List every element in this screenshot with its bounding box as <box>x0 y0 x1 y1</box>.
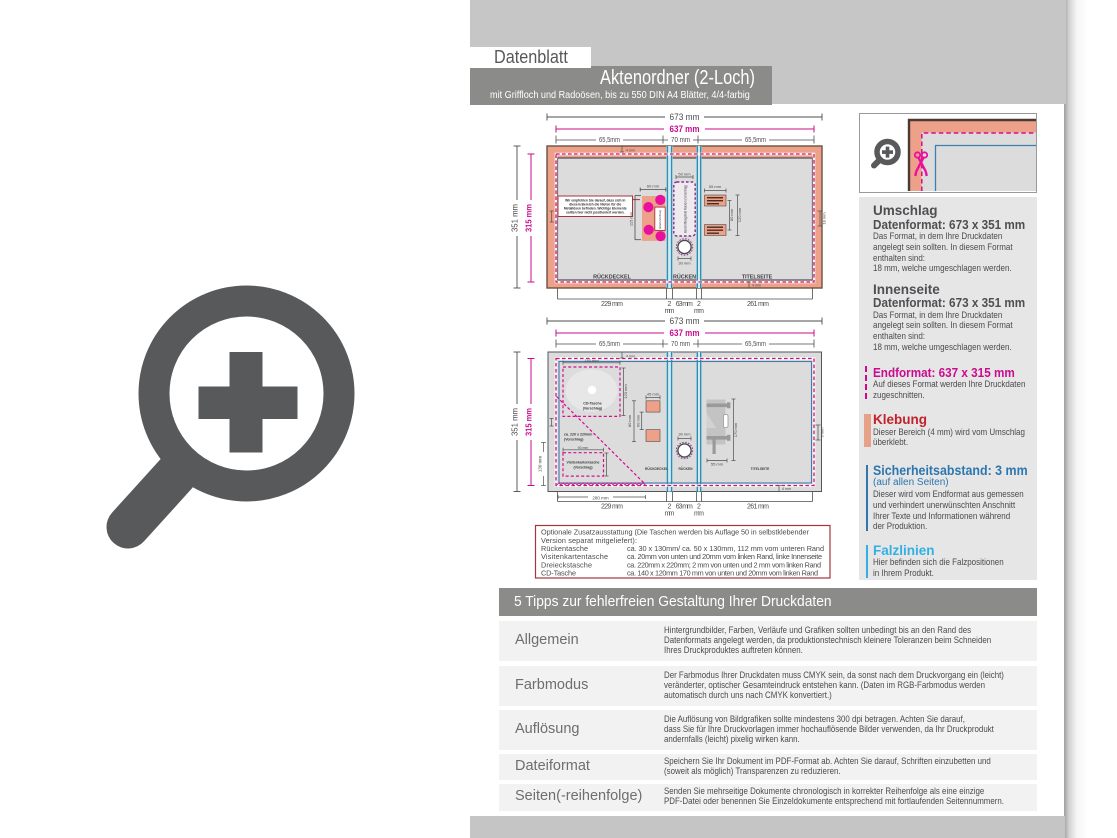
svg-text:mm: mm <box>694 511 704 518</box>
svg-text:4 mm: 4 mm <box>626 149 635 153</box>
svg-text:CD-Tasche: CD-Tasche <box>583 402 602 406</box>
svg-text:315 mm: 315 mm <box>523 204 533 232</box>
svg-text:RÜCKEN: RÜCKEN <box>678 467 693 471</box>
svg-text:50 mm: 50 mm <box>678 172 691 177</box>
svg-text:TITELSEITE: TITELSEITE <box>742 275 773 281</box>
svg-text:120 mm: 120 mm <box>623 384 628 399</box>
svg-text:60 mm: 60 mm <box>635 414 640 427</box>
svg-text:4 mm: 4 mm <box>626 355 635 359</box>
svg-text:65,5mm: 65,5mm <box>599 341 620 348</box>
svg-text:170 mm: 170 mm <box>733 422 738 437</box>
svg-text:261 mm: 261 mm <box>747 504 769 511</box>
svg-text:2: 2 <box>697 301 701 308</box>
svg-text:90 mm: 90 mm <box>578 446 589 450</box>
svg-text:140 mm: 140 mm <box>584 358 599 363</box>
svg-text:60 mm: 60 mm <box>647 184 660 189</box>
svg-text:3 mm: 3 mm <box>820 427 825 438</box>
svg-text:(Vorschlag): (Vorschlag) <box>574 466 593 470</box>
svg-text:RÜCKDECKEL: RÜCKDECKEL <box>645 467 668 471</box>
svg-text:351 mm: 351 mm <box>509 408 519 436</box>
svg-text:637 mm: 637 mm <box>670 328 700 338</box>
svg-text:55 mm: 55 mm <box>711 462 724 467</box>
svg-text:4 mm: 4 mm <box>752 284 761 288</box>
svg-text:mm: mm <box>665 511 675 518</box>
svg-text:280 mm: 280 mm <box>592 495 609 500</box>
svg-text:63 mm: 63 mm <box>676 301 693 308</box>
svg-text:TITELSEITE: TITELSEITE <box>751 467 770 471</box>
svg-text:ca. 140 x 120mm 170 mm von unt: ca. 140 x 120mm 170 mm von unten und 20m… <box>627 569 818 578</box>
svg-text:2: 2 <box>697 504 701 511</box>
svg-text:Abheftvorrichtung: Abheftvorrichtung <box>658 210 662 229</box>
svg-text:55 mm: 55 mm <box>709 184 722 189</box>
svg-text:351 mm: 351 mm <box>509 204 519 232</box>
svg-text:18 mm: 18 mm <box>822 212 827 225</box>
svg-text:30 mm: 30 mm <box>678 432 691 437</box>
svg-text:229 mm: 229 mm <box>601 504 623 511</box>
svg-text:mm: mm <box>665 308 675 315</box>
svg-text:63 mm: 63 mm <box>676 504 693 511</box>
svg-text:30 mm: 30 mm <box>678 261 691 266</box>
svg-text:315 mm: 315 mm <box>523 408 533 436</box>
svg-text:RÜCKDECKEL: RÜCKDECKEL <box>593 274 631 281</box>
svg-text:sollten hier nicht positionier: sollten hier nicht positioniert werden. <box>566 211 625 215</box>
svg-text:115 mm: 115 mm <box>629 211 634 226</box>
svg-text:Visitenkartentasche: Visitenkartentasche <box>566 461 599 465</box>
svg-text:70 mm: 70 mm <box>671 137 690 144</box>
svg-text:(Vorschlag): (Vorschlag) <box>564 438 584 442</box>
svg-text:4 mm: 4 mm <box>782 487 791 491</box>
svg-text:2: 2 <box>668 301 672 308</box>
svg-text:673 mm: 673 mm <box>670 112 700 122</box>
svg-text:mm: mm <box>694 308 704 315</box>
svg-text:673 mm: 673 mm <box>670 316 700 326</box>
svg-text:Beschriftungsfeld Rücken (Vors: Beschriftungsfeld Rücken (Vorschlag) <box>684 185 688 233</box>
svg-text:45 mm: 45 mm <box>647 392 660 397</box>
svg-text:65,5mm: 65,5mm <box>745 137 766 144</box>
svg-text:65,5mm: 65,5mm <box>599 137 620 144</box>
svg-text:120 mm: 120 mm <box>737 207 742 222</box>
svg-text:261 mm: 261 mm <box>747 301 769 308</box>
svg-text:70 mm: 70 mm <box>671 341 690 348</box>
svg-text:65,5mm: 65,5mm <box>745 341 766 348</box>
svg-text:RÜCKEN: RÜCKEN <box>673 274 696 281</box>
svg-text:ca. 220 x 220mm: ca. 220 x 220mm <box>564 433 592 437</box>
svg-text:130 mm: 130 mm <box>538 456 543 473</box>
svg-text:80 mm: 80 mm <box>627 414 632 427</box>
svg-text:CD-Tasche: CD-Tasche <box>541 569 576 578</box>
svg-text:(Vorschlag): (Vorschlag) <box>583 407 603 411</box>
svg-text:2: 2 <box>668 504 672 511</box>
svg-text:80 mm: 80 mm <box>729 208 734 221</box>
svg-text:229 mm: 229 mm <box>601 301 623 308</box>
svg-text:637 mm: 637 mm <box>670 124 700 134</box>
